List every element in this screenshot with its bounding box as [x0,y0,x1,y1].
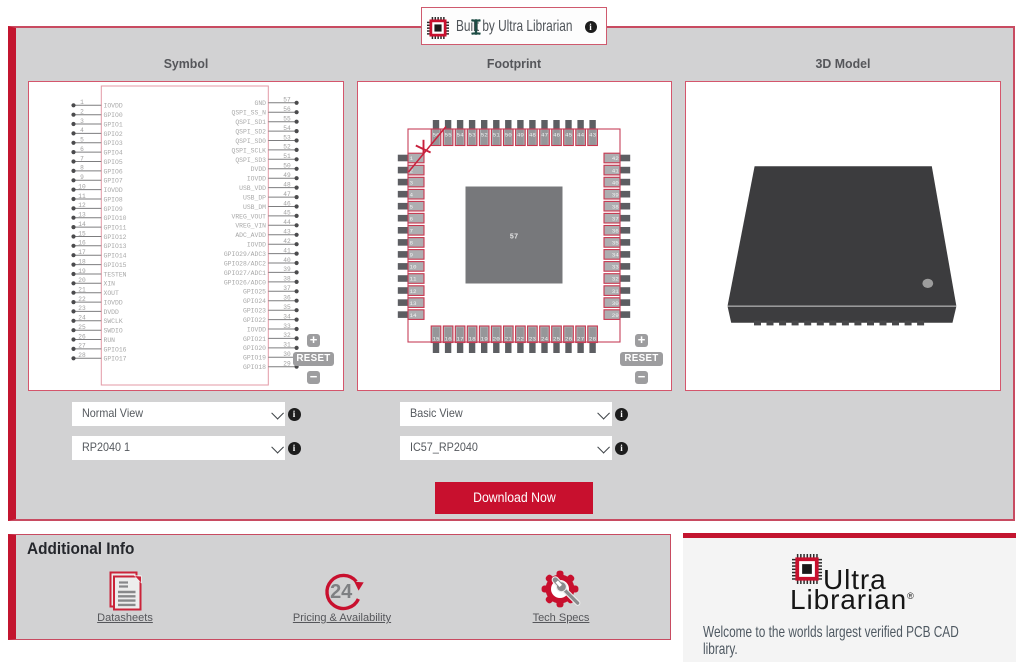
svg-text:GPIO23: GPIO23 [243,308,266,315]
svg-text:48: 48 [529,132,537,139]
svg-text:8: 8 [410,240,414,247]
svg-text:44: 44 [577,132,585,139]
svg-text:VREG_VOUT: VREG_VOUT [231,213,266,220]
svg-text:IOVDD: IOVDD [247,326,266,333]
svg-text:25: 25 [78,324,86,331]
svg-text:42: 42 [612,155,620,162]
svg-text:GPIO7: GPIO7 [104,178,123,185]
svg-text:21: 21 [78,287,86,294]
svg-text:38: 38 [612,203,620,210]
svg-text:GPIO5: GPIO5 [104,159,123,166]
svg-text:57: 57 [283,97,291,104]
svg-text:GPIO28/ADC2: GPIO28/ADC2 [224,260,266,267]
svg-text:3: 3 [410,179,414,186]
svg-text:39: 39 [283,266,291,273]
svg-text:10: 10 [78,183,86,190]
svg-text:34: 34 [612,252,620,259]
svg-text:GPIO27/ADC1: GPIO27/ADC1 [224,270,266,277]
svg-text:48: 48 [283,181,291,188]
svg-text:USB_VDD: USB_VDD [239,185,266,192]
svg-text:45: 45 [283,210,291,217]
svg-text:17: 17 [78,249,86,256]
svg-text:GPIO25: GPIO25 [243,289,266,296]
svg-text:GND: GND [254,100,266,107]
svg-text:GPIO15: GPIO15 [104,262,127,269]
svg-text:55: 55 [283,116,291,123]
svg-text:1: 1 [80,99,84,106]
svg-text:50: 50 [283,163,291,170]
svg-text:27: 27 [78,343,86,350]
svg-text:44: 44 [283,219,291,226]
svg-text:40: 40 [612,179,620,186]
svg-text:4: 4 [80,127,84,134]
svg-text:30: 30 [283,351,291,358]
svg-text:5: 5 [80,137,84,144]
svg-text:ADC_AVDD: ADC_AVDD [235,232,266,239]
svg-text:13: 13 [78,212,86,219]
svg-text:4: 4 [410,191,414,198]
svg-text:50: 50 [505,132,513,139]
svg-text:56: 56 [283,106,291,113]
svg-text:GPIO26/ADC0: GPIO26/ADC0 [224,279,266,286]
svg-text:GPIO0: GPIO0 [104,112,123,119]
svg-text:GPIO6: GPIO6 [104,168,123,175]
svg-text:36: 36 [612,228,620,235]
svg-text:30: 30 [612,300,620,307]
svg-text:13: 13 [410,300,418,307]
svg-text:GPIO16: GPIO16 [104,346,127,353]
svg-text:12: 12 [78,202,86,209]
svg-text:34: 34 [283,313,291,320]
svg-text:SWDIO: SWDIO [104,328,123,335]
svg-text:12: 12 [410,288,418,295]
svg-text:47: 47 [541,132,549,139]
svg-text:39: 39 [612,191,620,198]
svg-text:47: 47 [283,191,291,198]
svg-text:5: 5 [410,203,414,210]
svg-text:GPIO1: GPIO1 [104,121,123,128]
svg-text:41: 41 [612,167,620,174]
svg-text:28: 28 [78,352,86,359]
svg-text:11: 11 [410,276,418,283]
svg-text:32: 32 [283,332,291,339]
svg-text:QSPI_SD0: QSPI_SD0 [235,138,266,145]
svg-text:35: 35 [283,304,291,311]
svg-text:QSPI_SD3: QSPI_SD3 [235,157,266,164]
svg-text:7: 7 [80,155,84,162]
svg-text:IOVDD: IOVDD [247,176,266,183]
svg-text:33: 33 [612,264,620,271]
svg-text:GPIO24: GPIO24 [243,298,266,305]
svg-text:XIN: XIN [104,281,116,288]
svg-text:24: 24 [330,581,353,603]
svg-text:42: 42 [283,238,291,245]
svg-text:37: 37 [283,285,291,292]
svg-text:14: 14 [410,312,418,319]
svg-text:45: 45 [565,132,573,139]
svg-text:IOVDD: IOVDD [104,187,123,194]
svg-text:GPIO3: GPIO3 [104,140,123,147]
svg-text:41: 41 [283,247,291,254]
svg-text:GPIO14: GPIO14 [104,253,127,260]
svg-text:33: 33 [283,323,291,330]
svg-text:TESTEN: TESTEN [104,271,127,278]
svg-text:46: 46 [283,200,291,207]
svg-text:43: 43 [283,229,291,236]
svg-text:GPIO12: GPIO12 [104,234,127,241]
svg-text:RUN: RUN [104,337,116,344]
svg-text:15: 15 [78,230,86,237]
svg-text:51: 51 [493,132,501,139]
svg-text:DVDD: DVDD [251,166,267,173]
svg-text:14: 14 [78,221,86,228]
svg-text:GPIO13: GPIO13 [104,243,127,250]
svg-text:31: 31 [612,288,620,295]
svg-text:36: 36 [283,295,291,302]
svg-text:GPIO17: GPIO17 [104,356,127,363]
svg-text:52: 52 [283,144,291,151]
svg-text:11: 11 [78,193,86,200]
svg-text:54: 54 [283,125,291,132]
svg-text:35: 35 [612,240,620,247]
svg-text:53: 53 [469,132,477,139]
svg-text:1: 1 [410,155,414,162]
svg-text:24: 24 [78,315,86,322]
svg-text:53: 53 [283,134,291,141]
svg-text:GPIO29/ADC3: GPIO29/ADC3 [224,251,266,258]
svg-text:46: 46 [553,132,561,139]
svg-text:IOVDD: IOVDD [104,103,123,110]
svg-text:23: 23 [78,305,86,312]
svg-text:GPIO8: GPIO8 [104,196,123,203]
svg-text:49: 49 [283,172,291,179]
svg-text:20: 20 [78,277,86,284]
svg-text:USB_DP: USB_DP [243,195,266,202]
svg-text:3: 3 [80,118,84,125]
svg-text:IOVDD: IOVDD [104,300,123,307]
svg-text:8: 8 [80,165,84,172]
svg-text:51: 51 [283,153,291,160]
svg-text:SWCLK: SWCLK [104,318,123,325]
svg-text:GPIO22: GPIO22 [243,317,266,324]
svg-text:QSPI_SD2: QSPI_SD2 [235,129,266,136]
svg-text:GPIO21: GPIO21 [243,336,266,343]
svg-text:GPIO9: GPIO9 [104,206,123,213]
svg-text:GPIO11: GPIO11 [104,225,127,232]
svg-text:6: 6 [80,146,84,153]
svg-text:IOVDD: IOVDD [247,242,266,249]
svg-text:55: 55 [445,132,453,139]
svg-text:9: 9 [410,252,414,259]
svg-text:32: 32 [612,276,620,283]
svg-text:USB_DM: USB_DM [243,204,266,211]
svg-text:VREG_VIN: VREG_VIN [235,223,266,230]
svg-text:29: 29 [283,361,291,368]
svg-text:43: 43 [589,132,597,139]
svg-text:GPIO4: GPIO4 [104,150,123,157]
svg-text:19: 19 [78,268,86,275]
svg-text:26: 26 [78,333,86,340]
svg-text:6: 6 [410,215,414,222]
svg-text:9: 9 [80,174,84,181]
svg-text:GPIO18: GPIO18 [243,364,266,371]
svg-text:DVDD: DVDD [104,309,120,316]
svg-text:49: 49 [517,132,525,139]
svg-text:52: 52 [481,132,489,139]
svg-text:QSPI_SD1: QSPI_SD1 [235,119,266,126]
svg-text:GPIO20: GPIO20 [243,345,266,352]
svg-text:57: 57 [510,234,518,242]
svg-text:54: 54 [457,132,465,139]
svg-text:GPIO10: GPIO10 [104,215,127,222]
svg-text:GPIO2: GPIO2 [104,131,123,138]
svg-text:31: 31 [283,342,291,349]
svg-text:2: 2 [80,109,84,116]
svg-text:16: 16 [78,240,86,247]
svg-text:QSPI_SS_N: QSPI_SS_N [231,110,266,117]
svg-text:QSPI_SCLK: QSPI_SCLK [231,147,266,154]
svg-text:GPIO19: GPIO19 [243,355,266,362]
svg-text:29: 29 [612,312,620,319]
svg-text:18: 18 [78,258,86,265]
svg-text:7: 7 [410,228,414,235]
svg-text:37: 37 [612,215,620,222]
svg-text:XOUT: XOUT [104,290,120,297]
svg-text:10: 10 [410,264,418,271]
svg-text:22: 22 [78,296,86,303]
svg-text:40: 40 [283,257,291,264]
svg-text:38: 38 [283,276,291,283]
